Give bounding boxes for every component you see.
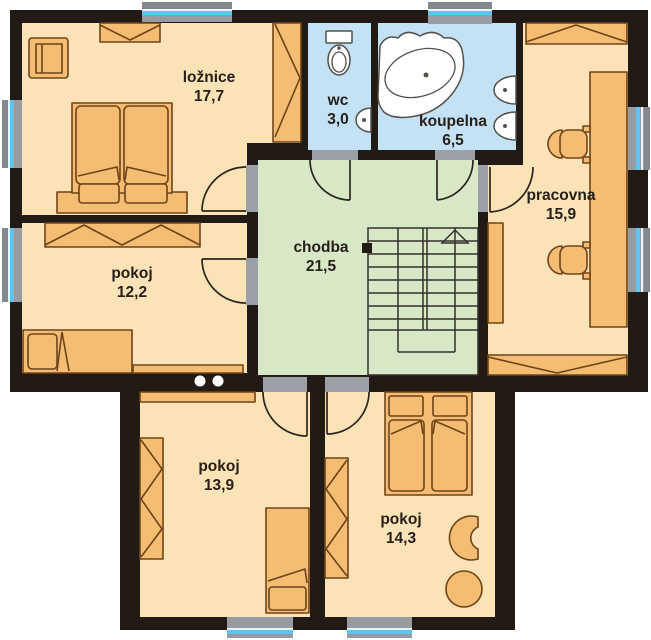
floor-plan-drawing	[0, 0, 651, 640]
room-name: pokoj	[111, 265, 152, 282]
pracovna-desk	[590, 72, 627, 327]
pokoj-south-wardrobe	[325, 458, 348, 578]
threshold-loznice	[246, 165, 258, 212]
room-name: pokoj	[380, 511, 421, 528]
pokoj-west-desk	[133, 365, 243, 373]
threshold-pracovna	[478, 165, 488, 212]
room-label-koupelna: koupelna 6,5	[419, 112, 487, 150]
floor-plan: ložnice 17,7 wc 3,0 koupelna 6,5 pracovn…	[0, 0, 651, 640]
pokoj-south-west-single-bed	[266, 508, 309, 613]
pracovna-wardrobe-top	[526, 23, 627, 44]
pokoj-south-round-table	[446, 571, 482, 607]
window-bottom-pokoj-south-west	[227, 617, 293, 638]
pokoj-south-west-wardrobe	[140, 438, 163, 559]
window-right-pracovna-upper	[628, 107, 650, 170]
window-left-pokoj-west	[2, 228, 22, 302]
room-name: pracovna	[527, 187, 596, 204]
room-area: 21,5	[306, 258, 336, 275]
room-area: 13,9	[204, 477, 234, 494]
pracovna-wardrobe-bottom	[488, 355, 627, 375]
stairs-start-marker	[362, 243, 372, 253]
room-name: wc	[328, 92, 349, 109]
room-label-wc: wc 3,0	[327, 91, 349, 129]
pokoj-south-west-shelf	[140, 392, 255, 402]
threshold-koupelna	[435, 150, 475, 160]
loznice-wardrobe-top	[100, 23, 160, 42]
threshold-pokoj-south-west	[263, 377, 307, 392]
threshold-wc	[312, 150, 358, 160]
room-area: 14,3	[386, 530, 416, 547]
room-label-pokoj-south: pokoj 14,3	[380, 510, 421, 548]
room-name: ložnice	[183, 69, 236, 86]
window-right-pracovna-lower	[628, 228, 650, 292]
room-area: 17,7	[194, 88, 224, 105]
room-area: 15,9	[546, 206, 576, 223]
room-area: 6,5	[442, 132, 464, 149]
loznice-armchair	[29, 38, 68, 78]
room-name: koupelna	[419, 113, 487, 130]
toilet	[326, 31, 352, 75]
loznice-double-bed	[57, 103, 187, 213]
room-label-pokoj-south-west: pokoj 13,9	[198, 457, 239, 495]
pokoj-west-single-bed	[23, 330, 132, 373]
room-name: chodba	[293, 239, 348, 256]
room-label-loznice: ložnice 17,7	[183, 68, 236, 106]
pracovna-shelf	[488, 223, 503, 323]
room-area: 3,0	[327, 111, 349, 128]
room-label-pracovna: pracovna 15,9	[527, 186, 596, 224]
window-bottom-pokoj-south	[347, 617, 412, 638]
room-label-chodba: chodba 21,5	[293, 238, 348, 276]
threshold-pokoj-west	[246, 258, 258, 305]
pokoj-south-double-bed	[385, 392, 472, 495]
pokoj-west-wardrobe	[45, 223, 200, 247]
window-top-loznice	[142, 2, 232, 22]
loznice-wardrobe-right	[273, 23, 301, 142]
room-area: 12,2	[117, 284, 147, 301]
threshold-pokoj-south	[325, 377, 369, 392]
room-label-pokoj-west: pokoj 12,2	[111, 264, 152, 302]
window-top-koupelna	[428, 2, 492, 24]
room-name: pokoj	[198, 458, 239, 475]
window-left-loznice	[2, 100, 22, 168]
